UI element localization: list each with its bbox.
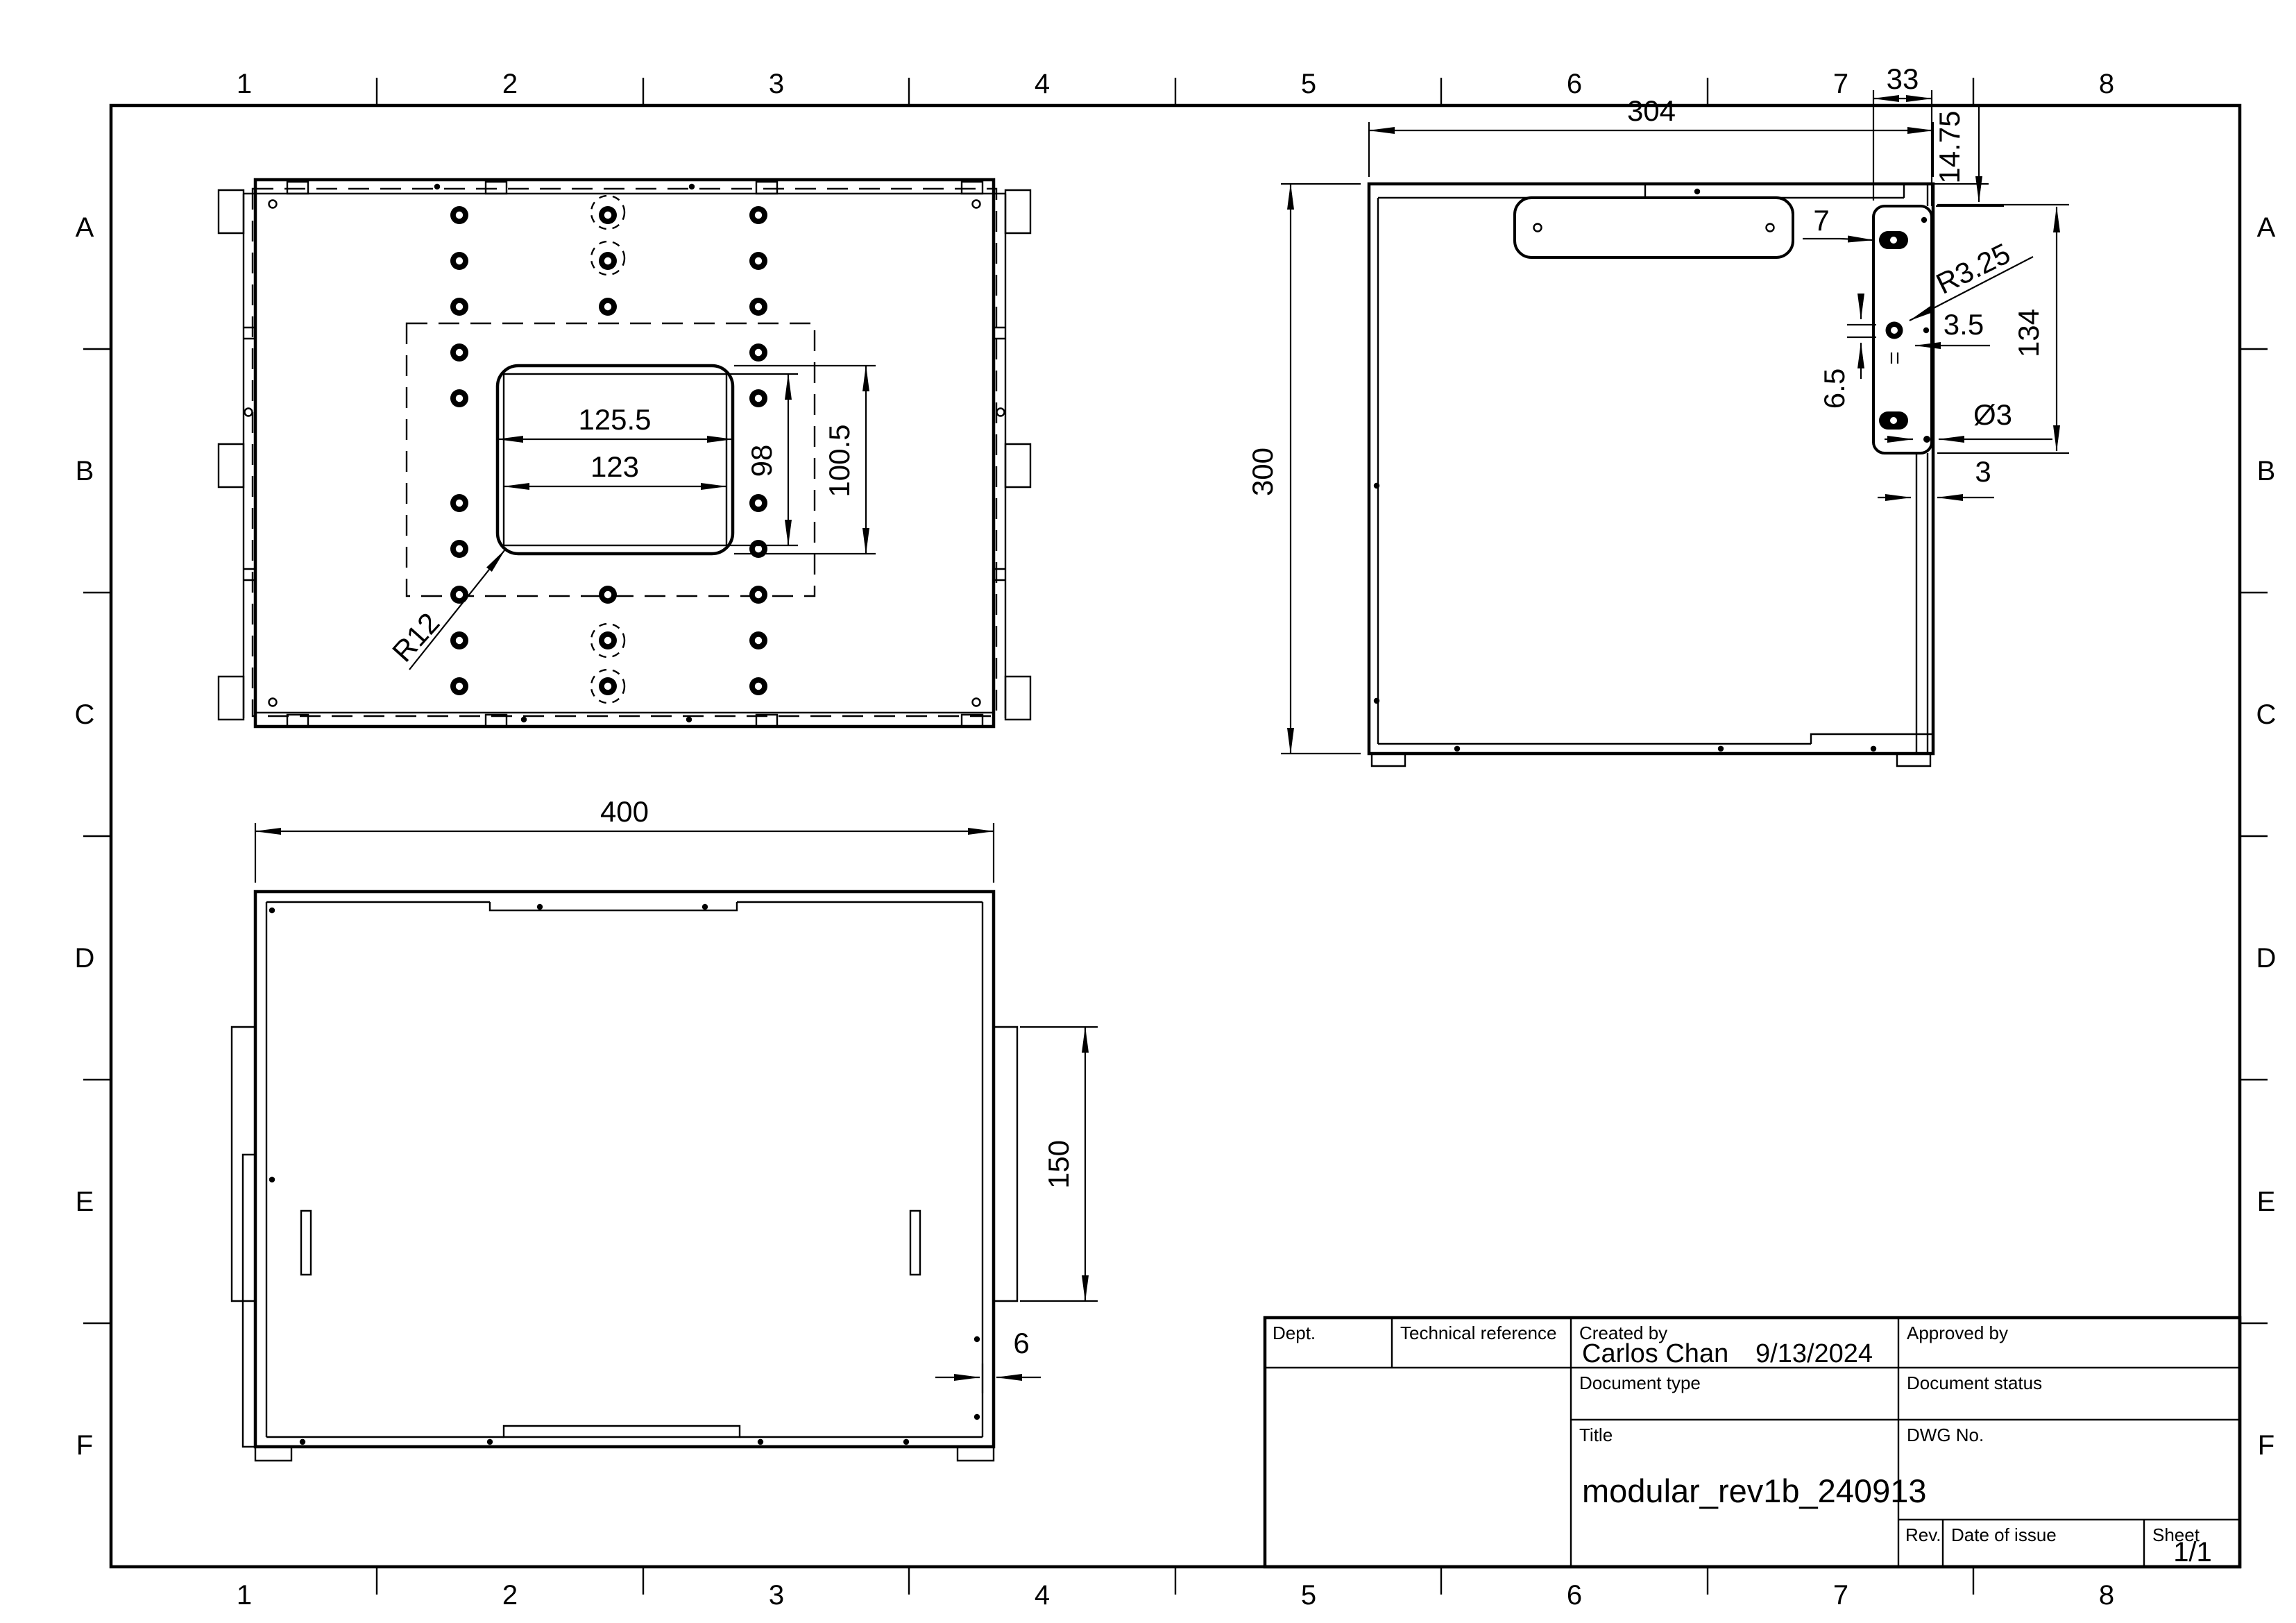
equal-spacing-marks bbox=[1891, 352, 1898, 364]
screw-hole bbox=[749, 206, 767, 224]
screw-hole bbox=[749, 343, 767, 362]
dim-corner-radius-text: R12 bbox=[386, 606, 445, 668]
grid-col-label-top: 3 bbox=[769, 69, 784, 99]
screw-hole bbox=[749, 494, 767, 512]
pilot-hole bbox=[269, 201, 277, 208]
title-value: modular_rev1b_240913 bbox=[1582, 1472, 1926, 1509]
side-view-feet bbox=[1372, 754, 1930, 766]
front-view-side-tabs bbox=[232, 1027, 1017, 1447]
plate-slot-hole-bottom-center bbox=[1890, 417, 1897, 424]
plate-slot-hole-top-center bbox=[1890, 237, 1897, 244]
plate-pin-dot bbox=[1921, 217, 1927, 223]
dim-ext-plate-top-offset bbox=[1933, 184, 2004, 206]
grid-col-label-top: 4 bbox=[1035, 69, 1050, 99]
side-view: 304 300 33 14.75 7 R3.25 3.5 6.5 Ø3 134 … bbox=[1246, 62, 2069, 766]
document-type-label: Document type bbox=[1579, 1373, 1701, 1393]
screw-hole bbox=[749, 298, 767, 316]
pilot-hole bbox=[973, 699, 980, 706]
screw-dot bbox=[269, 908, 275, 913]
frame-border bbox=[111, 105, 2240, 1567]
screw-dot bbox=[537, 904, 543, 910]
screw-hole bbox=[450, 343, 468, 362]
screw-dot bbox=[1871, 746, 1876, 751]
screw-dot bbox=[903, 1439, 909, 1445]
grid-row-label-right: C bbox=[2256, 699, 2277, 730]
dim-wall-text: 6 bbox=[1013, 1327, 1029, 1359]
screw-hole bbox=[749, 389, 767, 407]
pilot-hole bbox=[973, 201, 980, 208]
grid-col-label-top: 2 bbox=[502, 69, 518, 99]
plate-pin-dot bbox=[1923, 328, 1929, 333]
grid-col-label-bottom: 3 bbox=[769, 1580, 784, 1611]
screw-hole bbox=[450, 586, 468, 604]
grid-col-label-bottom: 7 bbox=[1833, 1580, 1848, 1611]
dim-width-outer-text: 125.5 bbox=[578, 403, 651, 436]
dim-height-outer-text: 100.5 bbox=[823, 424, 856, 497]
dim-wall-text: 3 bbox=[1975, 455, 1991, 488]
plate-small-hole bbox=[1923, 436, 1930, 443]
handle-hole bbox=[1534, 224, 1542, 232]
grid-row-label-left: A bbox=[76, 212, 94, 243]
grid-row-label-right: A bbox=[2257, 212, 2276, 243]
screw-hole bbox=[749, 677, 767, 695]
grid-col-label-top: 5 bbox=[1301, 69, 1316, 99]
technical-reference-label: Technical reference bbox=[1400, 1323, 1556, 1343]
grid-row-label-right: B bbox=[2257, 456, 2276, 486]
front-view-slots bbox=[301, 1211, 920, 1437]
dim-width-text: 400 bbox=[600, 795, 649, 828]
screw-hole bbox=[450, 494, 468, 512]
dim-ext-plate-width bbox=[1873, 90, 1932, 206]
screw-hole bbox=[599, 206, 617, 224]
dim-side-height-text: 150 bbox=[1042, 1140, 1075, 1189]
grid-row-label-right: E bbox=[2257, 1187, 2276, 1217]
grid-col-label-bottom: 1 bbox=[237, 1580, 252, 1611]
grid-row-label-left: E bbox=[76, 1187, 94, 1217]
front-view-inner-edges bbox=[266, 902, 983, 1437]
sheet-value: 1/1 bbox=[2173, 1537, 2212, 1567]
grid-col-label-top: 1 bbox=[237, 69, 252, 99]
screw-dot bbox=[269, 1177, 275, 1182]
screw-hole bbox=[599, 252, 617, 270]
title-label: Title bbox=[1579, 1425, 1613, 1445]
screw-hole bbox=[450, 298, 468, 316]
date-of-issue-label: Date of issue bbox=[1951, 1524, 2057, 1545]
edge-screw-dot bbox=[521, 717, 527, 722]
dim-width-text: 304 bbox=[1627, 94, 1676, 127]
dim-ext-hole-gap bbox=[1847, 325, 1876, 337]
side-view-outline bbox=[1369, 184, 1933, 754]
pilot-hole bbox=[269, 699, 277, 706]
grid-col-label-bottom: 5 bbox=[1301, 1580, 1316, 1611]
screw-hole bbox=[599, 298, 617, 316]
screw-dot bbox=[758, 1439, 763, 1445]
screw-hole bbox=[749, 586, 767, 604]
screw-dot bbox=[1454, 746, 1460, 751]
dim-hole-offset-text: 3.5 bbox=[1944, 308, 1984, 341]
rev-label: Rev. bbox=[1905, 1524, 1941, 1545]
dim-hole-gap-text: 6.5 bbox=[1818, 368, 1851, 409]
dim-hole-diameter-text: Ø3 bbox=[1973, 398, 2012, 431]
dim-slot-length-text: 7 bbox=[1813, 204, 1829, 237]
screw-dot bbox=[974, 1336, 980, 1342]
document-status-label: Document status bbox=[1907, 1373, 2042, 1393]
title-block-border bbox=[1265, 1318, 2240, 1567]
dim-plate-top-offset-text: 14.75 bbox=[1933, 110, 1966, 183]
grid-col-label-top: 8 bbox=[2099, 69, 2114, 99]
front-view: 400 150 6 bbox=[232, 795, 1098, 1461]
dept-label: Dept. bbox=[1273, 1323, 1316, 1343]
grid-col-label-bottom: 4 bbox=[1035, 1580, 1050, 1611]
screw-hole bbox=[599, 586, 617, 604]
created-by-value: Carlos Chan bbox=[1582, 1339, 1728, 1368]
screw-hole bbox=[450, 540, 468, 558]
pilot-hole bbox=[245, 409, 253, 416]
screw-hole bbox=[450, 389, 468, 407]
screw-dot bbox=[487, 1439, 493, 1445]
screw-dot bbox=[974, 1414, 980, 1420]
dim-hole-span-text: 134 bbox=[2012, 309, 2045, 357]
screw-dot bbox=[1694, 189, 1700, 194]
grid-col-label-top: 6 bbox=[1567, 69, 1582, 99]
side-view-handle-slot bbox=[1515, 198, 1793, 257]
dim-ext-wall bbox=[983, 1363, 994, 1393]
grid-col-label-bottom: 2 bbox=[502, 1580, 518, 1611]
side-view-inner-edges bbox=[1378, 184, 1933, 754]
grid-row-label-left: F bbox=[76, 1430, 93, 1461]
grid-row-label-right: D bbox=[2256, 943, 2277, 974]
screw-hole bbox=[599, 631, 617, 649]
screw-dot bbox=[702, 904, 708, 910]
screw-hole bbox=[450, 677, 468, 695]
plate-round-hole-middle-center bbox=[1891, 327, 1898, 334]
dim-height-text: 300 bbox=[1246, 448, 1279, 496]
front-view-feet bbox=[255, 1447, 994, 1461]
edge-screw-dot bbox=[434, 184, 440, 189]
approved-by-label: Approved by bbox=[1907, 1323, 2008, 1343]
screw-hole bbox=[749, 252, 767, 270]
dim-width-inner-text: 123 bbox=[590, 450, 639, 483]
grid-row-label-left: B bbox=[76, 456, 94, 486]
dim-slot-radius-text: R3.25 bbox=[1931, 237, 2015, 300]
screw-dot bbox=[1718, 746, 1724, 751]
screw-hole bbox=[599, 677, 617, 695]
screw-hole bbox=[450, 631, 468, 649]
dim-leader-slot-length bbox=[1840, 239, 1873, 240]
pilot-hole bbox=[997, 409, 1005, 416]
dim-ext-height bbox=[1281, 184, 1361, 754]
screw-hole bbox=[450, 206, 468, 224]
screw-hole bbox=[749, 631, 767, 649]
drawing-sheet: 1 2 3 4 5 6 7 8 1 2 3 4 5 6 7 8 A B C D … bbox=[0, 0, 2296, 1623]
edge-screw-dot bbox=[689, 184, 695, 189]
grid-row-label-left: D bbox=[75, 943, 95, 974]
grid-col-label-bottom: 8 bbox=[2099, 1580, 2114, 1611]
grid-row-label-right: F bbox=[2258, 1430, 2274, 1461]
top-view: 125.5 123 98 100.5 R12 bbox=[219, 180, 1030, 726]
screw-hole bbox=[450, 252, 468, 270]
cad-drawing-canvas: 1 2 3 4 5 6 7 8 1 2 3 4 5 6 7 8 A B C D … bbox=[0, 0, 2296, 1623]
grid-col-label-bottom: 6 bbox=[1567, 1580, 1582, 1611]
dwg-no-label: DWG No. bbox=[1907, 1425, 1984, 1445]
dim-plate-width-text: 33 bbox=[1887, 62, 1919, 95]
screw-dot bbox=[1374, 698, 1379, 704]
title-block-grid bbox=[1265, 1318, 2240, 1567]
grid-row-label-left: C bbox=[75, 699, 95, 730]
grid-col-label-top: 7 bbox=[1833, 69, 1848, 99]
title-block: Dept. Technical reference Created by Car… bbox=[1265, 1318, 2240, 1567]
created-date-value: 9/13/2024 bbox=[1755, 1339, 1873, 1368]
edge-screw-dot bbox=[686, 717, 692, 722]
dim-height-inner-text: 98 bbox=[745, 445, 778, 477]
handle-hole bbox=[1767, 224, 1774, 232]
front-view-outline bbox=[255, 892, 994, 1447]
screw-dot bbox=[1374, 483, 1379, 488]
screw-hole bbox=[749, 540, 767, 558]
screw-dot bbox=[300, 1439, 305, 1445]
